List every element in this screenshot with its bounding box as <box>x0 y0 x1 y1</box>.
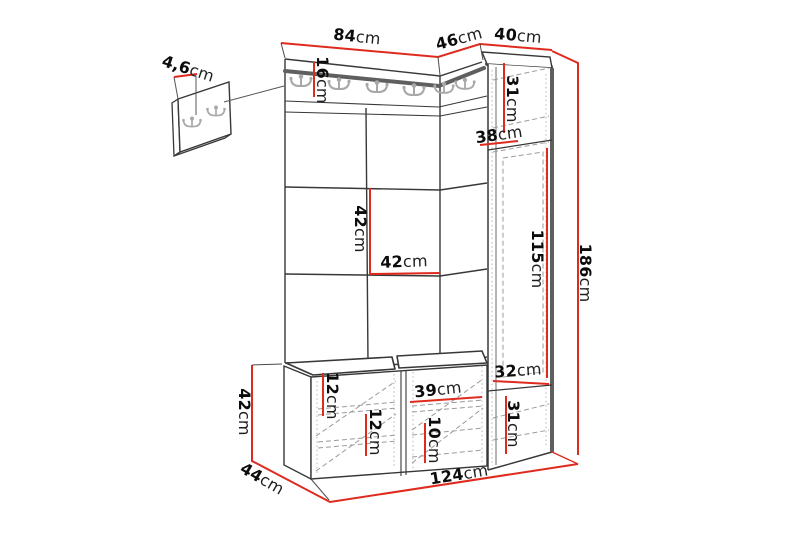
dim-label-bench-bottom: 10cm <box>426 416 442 463</box>
dim-unit: cm <box>355 27 382 48</box>
dim-value: 10 <box>425 416 444 439</box>
dim-unit: cm <box>528 264 547 289</box>
dim-unit: cm <box>504 423 523 448</box>
dim-label-cabinet-top-shelf: 31cm <box>504 75 520 122</box>
dim-label-top-main-width: 84cm <box>333 27 382 48</box>
dim-unit: cm <box>403 251 428 271</box>
dim-label-cabinet-gap: 32cm <box>494 361 542 380</box>
dim-label-bench-shelf: 12cm <box>367 408 383 455</box>
dim-value: 12 <box>366 408 385 431</box>
dim-label-bench-frame: 12cm <box>324 372 340 419</box>
dim-unit: cm <box>425 439 444 464</box>
furniture-dimension-diagram: 4,6cm 84cm 46cm 40cm 16cm 31cm 38cm 42cm… <box>0 0 800 533</box>
back-panel <box>285 59 487 365</box>
dim-unit: cm <box>497 122 524 144</box>
dim-label-tile-height: 42cm <box>352 205 368 252</box>
dim-value: 38 <box>474 125 499 147</box>
dim-label-total-height: 186cm <box>577 244 593 303</box>
dim-unit: cm <box>503 98 522 123</box>
dim-label-cabinet-bottom: 31cm <box>505 400 521 447</box>
dim-value: 31 <box>503 75 522 98</box>
dim-value: 31 <box>504 400 523 423</box>
dim-unit: cm <box>462 461 489 484</box>
leader-line <box>224 86 284 102</box>
dim-value: 84 <box>332 25 357 46</box>
dim-label-bench-height: 42cm <box>236 388 252 435</box>
dim-value: 186 <box>576 244 595 278</box>
dim-unit: cm <box>516 359 542 380</box>
dim-unit: cm <box>313 79 332 104</box>
wall-hook-panel <box>172 76 284 156</box>
dim-label-rail-height: 16cm <box>314 56 330 103</box>
dim-value: 16 <box>313 56 332 79</box>
dim-unit: cm <box>436 378 463 399</box>
dim-label-cabinet-middle-height: 115cm <box>529 230 545 289</box>
dim-value: 115 <box>528 230 547 264</box>
dim-unit: cm <box>351 228 370 253</box>
dim-value: 42 <box>351 205 370 228</box>
dim-value: 42 <box>235 388 254 411</box>
dim-value: 12 <box>323 372 342 395</box>
dim-label-tile-width: 42cm <box>380 253 428 271</box>
dim-value: 39 <box>413 380 438 401</box>
dim-label-top-cabinet-width: 40cm <box>494 26 543 46</box>
dim-value: 42 <box>380 252 403 272</box>
dim-unit: cm <box>576 278 595 303</box>
dim-value: 40 <box>494 24 518 45</box>
dim-unit: cm <box>323 395 342 420</box>
dim-unit: cm <box>235 411 254 436</box>
dim-unit: cm <box>366 431 385 456</box>
bench <box>284 351 487 479</box>
coat-hook-icon <box>289 74 312 86</box>
dim-unit: cm <box>516 26 542 47</box>
dim-value: 32 <box>494 361 518 382</box>
